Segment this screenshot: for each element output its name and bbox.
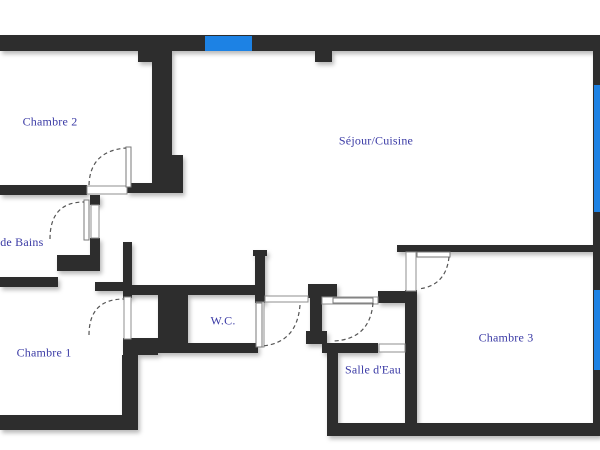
doors (50, 147, 450, 352)
door-leaf-sdb (84, 200, 89, 240)
door-frame-closet (124, 297, 131, 339)
window-right-lower-icon (594, 290, 600, 370)
wall-divider-base (127, 183, 183, 193)
window-top-icon (205, 36, 252, 51)
wall-bottom-right (327, 423, 600, 436)
room-label-salle-eau: Salle d'Eau (345, 363, 401, 378)
wall-wc-mass (158, 285, 188, 348)
wall-chambre2-sdb (0, 185, 87, 195)
door-leaf-wc (256, 303, 262, 347)
door-frame-chambre3 (406, 252, 416, 291)
window-right-upper-icon (594, 85, 600, 212)
door-frame-corridor (265, 296, 308, 302)
wall-wc-right (255, 250, 265, 303)
wall-divider-foot (152, 155, 183, 185)
room-label-chambre-1: Chambre 1 (17, 346, 72, 361)
wall-sdb-bottom (0, 277, 58, 287)
door-arc-vestibule-icon (334, 303, 373, 341)
door-leaf-vestibule (333, 298, 373, 303)
wall-sejour-bottom (397, 245, 595, 252)
wall-vestibule (378, 291, 407, 303)
wall-wc-bottom (138, 343, 258, 353)
floorplan: Chambre 2 Séjour/Cuisine Salle de Bains … (0, 0, 600, 450)
door-frame-sdb (91, 205, 99, 238)
wall-sde-left (327, 343, 338, 423)
wall-corridor-cap-bottom (306, 331, 327, 344)
wall-chambre1-bottom (0, 415, 127, 430)
wall-chambre3-left (405, 290, 417, 423)
wall-sejour-pilaster (315, 51, 332, 62)
wall-sdb-right-top (90, 195, 100, 205)
room-label-sejour-cuisine: Séjour/Cuisine (339, 134, 413, 149)
door-arc-closet-icon (89, 299, 124, 335)
door-leaf-chambre2 (126, 147, 131, 187)
door-frame-sde (379, 344, 405, 352)
door-arc-wc-icon (262, 305, 300, 346)
room-label-chambre-2: Chambre 2 (23, 115, 78, 130)
room-label-wc: W.C. (210, 314, 235, 329)
wall-hall-bottom (95, 282, 127, 291)
walls (0, 35, 600, 436)
floorplan-drawing (0, 0, 600, 450)
door-arc-chambre2-icon (89, 148, 126, 185)
door-leaf-chambre3 (417, 252, 450, 257)
door-arc-sdb-icon (50, 202, 84, 239)
wall-sdb-step (57, 255, 100, 271)
wall-top (0, 35, 600, 51)
door-arc-chambre3-icon (418, 257, 449, 289)
door-frame-chambre2 (87, 186, 127, 194)
room-label-salle-de-bains: Salle de Bains (0, 235, 43, 250)
wall-divider-stem (152, 51, 172, 157)
wall-wc-top (132, 285, 258, 295)
wall-closet-top (123, 242, 132, 298)
room-label-chambre-3: Chambre 3 (479, 331, 534, 346)
wall-wc-right-cap (253, 250, 267, 256)
